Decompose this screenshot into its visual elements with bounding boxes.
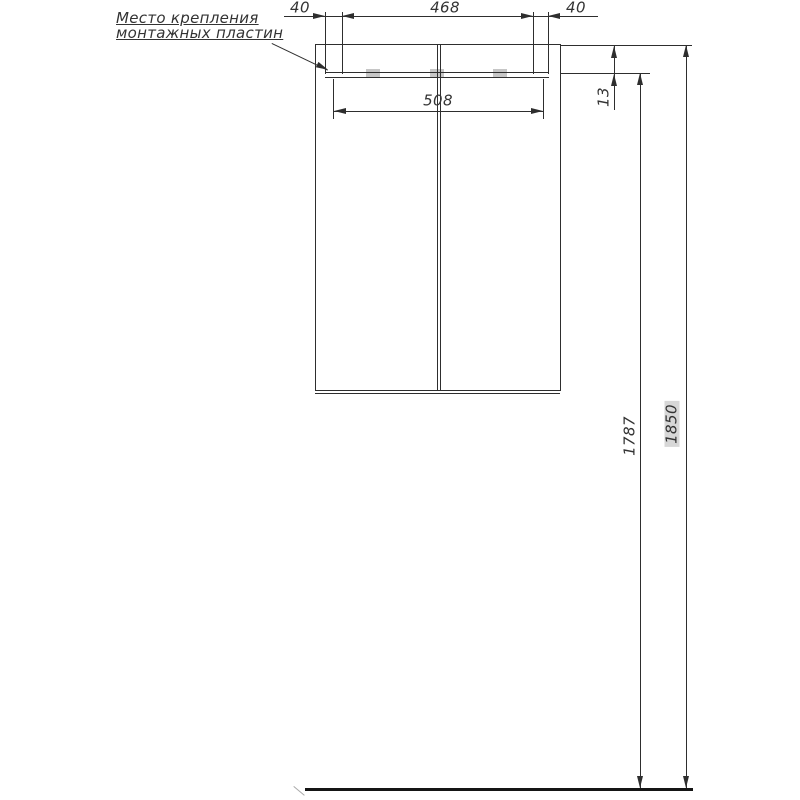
dim-arrow-icon <box>548 13 560 19</box>
ext-line-top-right <box>561 45 692 46</box>
dim-arrow-icon <box>611 74 617 86</box>
dim-arrow-icon <box>611 46 617 58</box>
cabinet-bottom-line <box>315 393 560 394</box>
note-leader-text: Место крепления монтажных пластин <box>116 11 283 41</box>
floor-hatch-mark <box>293 786 304 796</box>
dim-arrow-icon <box>521 13 533 19</box>
dim-label-top-span: 468 <box>430 1 460 16</box>
drawing-canvas: Место крепления монтажных пластин 40 468… <box>0 0 800 800</box>
dim-label-top-right: 40 <box>566 1 586 16</box>
dim-arrow-icon <box>637 73 643 85</box>
dim-arrow-icon <box>334 108 346 114</box>
dim-arrow-icon <box>531 108 543 114</box>
dim-arrow-icon <box>637 776 643 788</box>
mounting-strip-bottom-line <box>325 77 549 78</box>
floor-line <box>305 788 693 791</box>
dim-arrow-icon <box>342 13 354 19</box>
dim-line-1850 <box>686 45 687 788</box>
dim-label-1850: 1850 <box>665 401 680 447</box>
dim-arrow-icon <box>683 45 689 57</box>
note-line-2: монтажных пластин <box>116 26 283 41</box>
dim-label-top-left: 40 <box>290 1 310 16</box>
dim-label-13: 13 <box>597 87 612 107</box>
ext-line-508-right <box>543 79 544 119</box>
dim-line-508 <box>333 111 543 112</box>
dim-arrow-icon <box>313 13 325 19</box>
dim-arrow-icon <box>683 776 689 788</box>
dim-label-1787: 1787 <box>623 416 638 456</box>
dim-label-width: 508 <box>423 94 453 109</box>
mounting-strip-top-line <box>325 72 549 73</box>
dim-line-1787 <box>640 73 641 788</box>
